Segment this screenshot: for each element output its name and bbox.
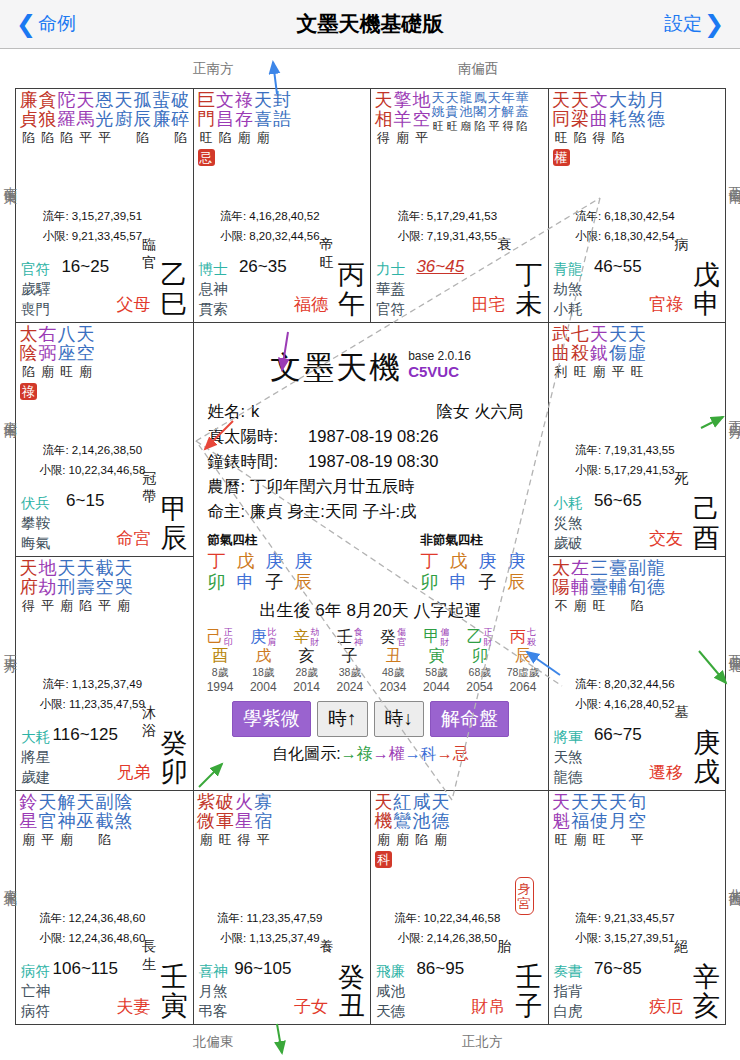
- star-天哭: 天哭廟: [114, 559, 133, 613]
- brightness: 旺: [555, 130, 568, 145]
- palace-career[interactable]: 天同旺權天梁陷文曲得大耗陷劫煞月德流年: 6,18,30,42,54小限: 6,…: [549, 89, 727, 323]
- star-row: 天同旺權天梁陷文曲得大耗陷劫煞月德: [552, 91, 666, 166]
- palace-parents[interactable]: 廉貞陷貪狼陷陀羅陷天馬平恩光平天廚孤辰陷蜚廉破碎陷流年: 3,15,27,39,…: [16, 89, 194, 323]
- birth-info: 姓名: k 陰女 火六局 真太陽時: 1987-08-19 08:26 鐘錶時間…: [208, 399, 540, 524]
- life-stage: 帝旺: [318, 235, 335, 271]
- palace-friends[interactable]: 武曲利七殺旺天鉞廟天傷平天虛旺流年: 7,19,31,43,55小限: 5,17…: [549, 323, 727, 557]
- star-天馬: 天馬平: [76, 91, 95, 145]
- non-solar-term-pillars-columns: 丁卯戊申庚子庚辰: [421, 551, 526, 593]
- star-天貴: 天貴旺: [445, 91, 459, 133]
- luck-year: 2044: [423, 680, 450, 694]
- god-label: 力士: [376, 259, 405, 279]
- brightness: 得: [503, 120, 514, 133]
- star-七殺: 七殺旺: [571, 325, 590, 379]
- liunian-years: 流年: 6,18,30,42,54: [549, 209, 702, 224]
- palace-travel[interactable]: 太陽不左輔廟三臺旺臺輔副旬陷龍德流年: 8,20,32,44,56小限: 4,1…: [549, 557, 727, 791]
- liunian-years: 流年: 10,22,34,46,58: [371, 911, 524, 926]
- star-副截: 副截陷: [95, 793, 114, 847]
- liunian-years: 流年: 7,19,31,43,55: [549, 443, 702, 458]
- stem-branch: 庚戌: [692, 729, 721, 787]
- star-左輔: 左輔廟: [571, 559, 590, 613]
- star-劫煞: 劫煞: [628, 91, 647, 129]
- brightness: 陷: [612, 130, 625, 145]
- brightness: 陷: [631, 598, 644, 613]
- luck-age: 38歲: [339, 666, 361, 680]
- brightness: 陷: [517, 120, 528, 133]
- god-label: 伏兵: [21, 493, 50, 513]
- body-palace-badge: 身宮: [515, 877, 534, 915]
- luck-pillars-row: 己正印酉8歲1994庚比肩戌18歲2004辛劫財亥28歲2014壬食神子38歲2…: [200, 628, 544, 694]
- god-label: 官符: [376, 299, 405, 319]
- god-label: 咸池: [376, 981, 405, 1001]
- brightness: 廟: [117, 598, 130, 613]
- star-龍德: 龍德: [647, 559, 666, 597]
- action-buttons: 學紫微 時↑ 時↓ 解命盤: [194, 701, 548, 737]
- palace-name: 兄弟: [117, 761, 151, 784]
- god-label: 病符: [21, 961, 50, 981]
- star-咸池: 咸池陷: [412, 793, 431, 847]
- brightness: 平: [79, 130, 92, 145]
- brightness: 平: [612, 364, 625, 379]
- brightness: 陷: [79, 598, 92, 613]
- liunian-years: 流年: 12,24,36,48,60: [16, 911, 169, 926]
- brightness: 陷: [219, 130, 232, 145]
- palace-name: 田宅: [472, 293, 506, 316]
- god-label: 喪門: [21, 299, 50, 319]
- god-label: 貫索: [199, 299, 228, 319]
- palace-wealth[interactable]: 天機廟科紅鸞廟咸池陷天德廟流年: 10,22,34,46,58小限: 2,14,…: [371, 791, 549, 1025]
- star-三臺: 三臺旺: [590, 559, 609, 613]
- life-stage: 衰: [496, 235, 513, 253]
- clock-time-line: 鐘錶時間: 1987-08-19 08:30: [208, 449, 540, 474]
- star-陀羅: 陀羅陷: [57, 91, 76, 145]
- ten-god-label: 比肩: [267, 628, 276, 647]
- god-label: 喜神: [199, 961, 228, 981]
- legend-arrow: →: [437, 745, 453, 762]
- brightness: 廟: [461, 120, 472, 133]
- brightness: 廟: [60, 598, 73, 613]
- hour-up-button[interactable]: 時↑: [317, 701, 368, 737]
- god-label: 弔客: [199, 1001, 228, 1021]
- app-title-row: 文墨天機 base 2.0.16 C5VUC: [194, 347, 548, 389]
- palace-name: 子女: [294, 995, 328, 1018]
- palace-children[interactable]: 紫微廟破軍旺火星得寡宿平流年: 11,23,35,47,59小限: 1,13,2…: [194, 791, 372, 1025]
- life-stage: 病: [673, 235, 690, 253]
- center-info-panel: 文墨天機 base 2.0.16 C5VUC 姓名: k 陰女 火六局 真太陽時…: [194, 323, 549, 791]
- luck-pillar: 乙正財卯68歲2054: [459, 628, 500, 694]
- liunian-years: 流年: 3,15,27,39,51: [16, 209, 169, 224]
- back-chevron-icon: ❮: [16, 14, 36, 34]
- star-鳳閣: 鳳閣陷: [473, 91, 487, 133]
- luck-age: 78虛歲: [507, 666, 540, 680]
- brightness: 廟: [377, 832, 390, 847]
- compass-north-by-west: 北偏西: [726, 878, 740, 884]
- brightness: 得: [238, 832, 251, 847]
- compass-east-by-south: 東偏南: [1, 410, 19, 416]
- stem-branch: 戊申: [692, 261, 721, 319]
- liunian-years: 流年: 11,23,35,47,59: [194, 911, 347, 926]
- luck-age: 48歲: [382, 666, 404, 680]
- name-line: 姓名: k 陰女 火六局: [208, 399, 540, 424]
- star-截空: 截空平: [95, 559, 114, 613]
- star-紫微: 紫微廟: [197, 793, 216, 847]
- compass-west-by-south: 西偏南: [726, 176, 740, 182]
- life-stage: 死: [673, 469, 690, 487]
- palace-name: 遷移: [649, 761, 683, 784]
- star-天空: 天空廟: [76, 325, 95, 379]
- stem-branch: 癸卯: [160, 729, 189, 787]
- pillar: 戊申: [237, 551, 255, 593]
- palace-property[interactable]: 天相得擎羊廟地空平天姚旺天貴旺龍池廟鳳閣陷天才平年解得華蓋陷流年: 5,17,2…: [371, 89, 549, 323]
- luck-year: 2004: [250, 680, 277, 694]
- star-row: 巨門旺忌文昌陷祿存廟天喜廟封誥: [197, 91, 292, 166]
- star-地空: 地空平: [412, 91, 431, 145]
- star-太陽: 太陽不: [552, 559, 571, 613]
- ten-god-label: 正印: [224, 628, 233, 647]
- compass-south-by-east: 南偏東: [1, 176, 19, 182]
- true-solar-label: 真太陽時:: [208, 424, 304, 449]
- liunian-years: 流年: 5,17,29,41,53: [371, 209, 524, 224]
- brightness: 陷: [415, 832, 428, 847]
- star-天魁: 天魁旺: [552, 793, 571, 847]
- star-副旬: 副旬陷: [628, 559, 647, 613]
- star-天虛: 天虛旺: [628, 325, 647, 379]
- transform-badge: 忌: [198, 149, 215, 166]
- life-stage: 養: [318, 937, 335, 955]
- brightness: 旺: [447, 120, 458, 133]
- star-文昌: 文昌陷: [216, 91, 235, 145]
- legend-arrow: →: [341, 745, 357, 762]
- brightness: 廟: [238, 130, 251, 145]
- compass-east-by-north: 東偏北: [1, 878, 19, 884]
- interpret-chart-button[interactable]: 解命盤: [430, 701, 509, 737]
- star-八座: 八座旺: [57, 325, 76, 379]
- ten-god-label: 食神: [354, 628, 363, 647]
- luck-age: 18歲: [252, 666, 274, 680]
- star-鈴星: 鈴星廟: [19, 793, 38, 847]
- settings-chevron-icon: ❯: [704, 14, 724, 34]
- brightness: 不: [555, 598, 568, 613]
- star-地劫: 地劫平: [38, 559, 57, 613]
- brightness: 廟: [396, 130, 409, 145]
- pillar: 戊申: [450, 551, 468, 593]
- palace-fortune[interactable]: 巨門旺忌文昌陷祿存廟天喜廟封誥流年: 4,16,28,40,52小限: 8,20…: [194, 89, 372, 323]
- true-solar-value: 1987-08-19 08:26: [308, 427, 438, 445]
- star-大耗: 大耗陷: [609, 91, 628, 145]
- star-row: 廉貞陷貪狼陷陀羅陷天馬平恩光平天廚孤辰陷蜚廉破碎陷: [19, 91, 190, 145]
- ten-god-label: 偏財: [440, 628, 449, 647]
- luck-age: 68歲: [469, 666, 491, 680]
- brightness: 平: [41, 832, 54, 847]
- star-旬空: 旬空平: [628, 793, 647, 847]
- star-天機: 天機廟科: [374, 793, 393, 868]
- star-陰煞: 陰煞: [114, 793, 133, 831]
- life-stage: 冠帶: [141, 469, 158, 505]
- luck-pillar: 壬食神子38歲2024: [329, 628, 370, 694]
- year-gods: 伏兵攀鞍晦氣: [21, 493, 50, 553]
- year-gods: 力士華蓋官符: [376, 259, 405, 319]
- year-gods: 小耗災煞歲破: [554, 493, 583, 553]
- legend-arrow: →: [373, 745, 389, 762]
- ten-god-label: 劫財: [311, 628, 320, 647]
- luck-year: 2064: [510, 680, 537, 694]
- hour-down-button[interactable]: 時↓: [374, 701, 425, 737]
- star-天府: 天府得: [19, 559, 38, 613]
- brightness: 平: [98, 130, 111, 145]
- version-label: base 2.0.16: [408, 349, 471, 363]
- brightness: 平: [631, 832, 644, 847]
- legend-char: 祿: [357, 745, 373, 762]
- gender-bureau: 陰女 火六局: [436, 399, 539, 424]
- star-武曲: 武曲利: [552, 325, 571, 379]
- compass-due-south: 正南方: [193, 60, 234, 78]
- star-天月: 天月: [609, 793, 628, 831]
- brightness: 陷: [98, 832, 111, 847]
- palace-name: 交友: [649, 527, 683, 550]
- star-天相: 天相得: [374, 91, 393, 145]
- brightness: 廟: [41, 364, 54, 379]
- god-label: 小耗: [554, 493, 583, 513]
- star-臺輔: 臺輔: [609, 559, 628, 597]
- back-label: 命例: [38, 11, 76, 37]
- star-巨門: 巨門旺忌: [197, 91, 216, 166]
- legend-items: →祿→權→科→忌: [341, 744, 469, 765]
- solar-term-pillars-header: 節氣四柱: [208, 532, 313, 549]
- page-title: 文墨天機基礎版: [297, 10, 444, 38]
- masters-line: 命主: 廉貞 身主:天同 子斗:戌: [208, 499, 540, 524]
- year-gods: 青龍劫煞小耗: [554, 259, 583, 319]
- star-天姚: 天姚旺: [431, 91, 445, 133]
- stem-branch: 己酉: [692, 495, 721, 553]
- brightness: 廟: [200, 832, 213, 847]
- liunian-years: 流年: 2,14,26,38,50: [16, 443, 169, 458]
- luck-age: 8歲: [212, 666, 228, 680]
- star-row: 鈴星廟天官平解神廟天巫副截陷陰煞: [19, 793, 133, 847]
- god-label: 病符: [21, 1001, 50, 1021]
- brightness: 廟: [574, 598, 587, 613]
- stem-branch: 癸丑: [337, 963, 366, 1021]
- brightness: 廟: [574, 832, 587, 847]
- star-華蓋: 華蓋陷: [515, 91, 529, 133]
- star-row: 太陽不左輔廟三臺旺臺輔副旬陷龍德: [552, 559, 666, 613]
- ziwei-chart-grid: 廉貞陷貪狼陷陀羅陷天馬平恩光平天廚孤辰陷蜚廉破碎陷流年: 3,15,27,39,…: [15, 88, 726, 1025]
- luck-year: 1994: [207, 680, 234, 694]
- liunian-years: 流年: 8,20,32,44,56: [549, 677, 702, 692]
- god-label: 災煞: [554, 513, 583, 533]
- palace-name: 官祿: [649, 293, 683, 316]
- brightness: 平: [41, 598, 54, 613]
- luck-year: 2054: [466, 680, 493, 694]
- god-label: 月煞: [199, 981, 228, 1001]
- brightness: 旺: [631, 364, 644, 379]
- stem-branch: 丁未: [515, 261, 544, 319]
- legend-arrow: →: [405, 745, 421, 762]
- star-天鉞: 天鉞廟: [590, 325, 609, 379]
- self-transform-legend: 自化圖示: →祿→權→科→忌: [194, 744, 548, 765]
- year-gods: 官符歲驛喪門: [21, 259, 50, 319]
- palace-name: 父母: [117, 293, 151, 316]
- name-value: k: [251, 399, 259, 424]
- star-文曲: 文曲得: [590, 91, 609, 145]
- star-天梁: 天梁陷: [571, 91, 590, 145]
- nav-bar: ❮ 命例 文墨天機基礎版 設定 ❯: [0, 0, 740, 49]
- god-label: 歲驛: [21, 279, 50, 299]
- learn-ziwei-button[interactable]: 學紫微: [232, 701, 311, 737]
- year-gods: 病符亡神病符: [21, 961, 50, 1021]
- brightness: 陷: [22, 364, 35, 379]
- star-row: 武曲利七殺旺天鉞廟天傷平天虛旺: [552, 325, 647, 379]
- god-label: 飛廉: [376, 961, 405, 981]
- life-stage: 長生: [141, 937, 158, 973]
- pillar: 庚辰: [295, 551, 313, 593]
- life-stage: 臨官: [141, 235, 158, 271]
- palace-name: 財帛: [472, 995, 506, 1018]
- god-label: 指背: [554, 981, 583, 1001]
- brightness: 平: [415, 130, 428, 145]
- ten-god-label: 七殺: [527, 628, 536, 647]
- compass-due-north: 正北方: [462, 1033, 503, 1051]
- star-天刑: 天刑廟: [57, 559, 76, 613]
- brightness: 得: [377, 130, 390, 145]
- luck-pillar: 庚比肩戌18歲2004: [243, 628, 284, 694]
- brightness: 平: [98, 598, 111, 613]
- pillar: 庚子: [266, 551, 284, 593]
- stem-branch: 壬寅: [160, 963, 189, 1021]
- brightness: 旺: [200, 130, 213, 145]
- star-row: 天魁旺天福廟天使旺天月旬空平: [552, 793, 647, 847]
- god-label: 亡神: [21, 981, 50, 1001]
- brightness: 旺: [593, 832, 606, 847]
- year-gods: 飛廉咸池天德: [376, 961, 405, 1021]
- palace-health[interactable]: 天魁旺天福廟天使旺天月旬空平流年: 9,21,33,45,57小限: 3,15,…: [549, 791, 727, 1025]
- brightness: 廟: [257, 130, 270, 145]
- ten-god-label: 傷官: [397, 628, 406, 647]
- lunar-date-line: 農曆: 丁卯年閏六月廿五辰時: [208, 474, 540, 499]
- brightness: 陷: [574, 130, 587, 145]
- star-天壽: 天壽陷: [76, 559, 95, 613]
- brightness: 陷: [174, 130, 187, 145]
- pillar: 丁卯: [208, 551, 226, 593]
- clock-time-value: 1987-08-19 08:30: [308, 452, 438, 470]
- star-天使: 天使旺: [590, 793, 609, 847]
- star-天同: 天同旺權: [552, 91, 571, 166]
- star-月德: 月德: [647, 91, 666, 129]
- ten-god-label: 正財: [484, 628, 493, 647]
- brightness: 廟: [593, 364, 606, 379]
- brightness: 平: [489, 120, 500, 133]
- luck-pillar: 己正印酉8歲1994: [200, 628, 241, 694]
- stem-branch: 乙巳: [160, 261, 189, 319]
- star-row: 紫微廟破軍旺火星得寡宿平: [197, 793, 273, 847]
- star-封誥: 封誥: [273, 91, 292, 129]
- name-label: 姓名:: [208, 399, 246, 424]
- legend-char: 科: [421, 745, 437, 762]
- star-天德: 天德廟: [431, 793, 450, 847]
- star-row: 太陰陷祿右弼廟八座旺天空廟: [19, 325, 95, 400]
- star-破軍: 破軍旺: [216, 793, 235, 847]
- luck-start-line: 出生後 6年 8月20天 八字起運: [194, 599, 548, 622]
- chart-title: 文墨天機: [270, 347, 402, 389]
- god-label: 大耗: [21, 727, 50, 747]
- stem-branch: 甲辰: [160, 495, 189, 553]
- star-天官: 天官平: [38, 793, 57, 847]
- life-stage: 絕: [673, 937, 690, 955]
- transform-badge: 科: [375, 851, 392, 868]
- star-天廚: 天廚: [114, 91, 133, 129]
- life-stage: 墓: [673, 703, 690, 721]
- palace-spouse[interactable]: 鈴星廟天官平解神廟天巫副截陷陰煞流年: 12,24,36,48,60小限: 12…: [16, 791, 194, 1025]
- palace-life[interactable]: 太陰陷祿右弼廟八座旺天空廟流年: 2,14,26,38,50小限: 10,22,…: [16, 323, 194, 557]
- star-火星: 火星得: [235, 793, 254, 847]
- luck-pillar: 癸傷官丑48歲2034: [373, 628, 414, 694]
- luck-year: 2014: [293, 680, 320, 694]
- build-code: C5VUC: [408, 363, 471, 380]
- brightness: 陷: [22, 130, 35, 145]
- brightness: 廟: [434, 832, 447, 847]
- non-solar-term-pillars: 非節氣四柱 丁卯戊申庚子庚辰: [421, 532, 526, 593]
- pillar: 丁卯: [421, 551, 439, 593]
- star-紅鸞: 紅鸞廟: [393, 793, 412, 847]
- brightness: 廟: [60, 832, 73, 847]
- god-label: 歲建: [21, 767, 50, 787]
- god-label: 將軍: [554, 727, 583, 747]
- liunian-years: 流年: 4,16,28,40,52: [194, 209, 347, 224]
- year-gods: 喜神月煞弔客: [199, 961, 228, 1021]
- god-label: 奏書: [554, 961, 583, 981]
- non-solar-term-pillars-header: 非節氣四柱: [421, 532, 526, 549]
- brightness: 陷: [136, 130, 149, 145]
- star-龍池: 龍池廟: [459, 91, 473, 133]
- star-天福: 天福廟: [571, 793, 590, 847]
- star-寡宿: 寡宿平: [254, 793, 273, 847]
- star-解神: 解神廟: [57, 793, 76, 847]
- god-label: 小耗: [554, 299, 583, 319]
- palace-name: 福德: [294, 293, 328, 316]
- star-擎羊: 擎羊廟: [393, 91, 412, 145]
- version-block: base 2.0.16 C5VUC: [408, 349, 471, 380]
- god-label: 歲破: [554, 533, 583, 553]
- god-label: 龍德: [554, 767, 583, 787]
- legend-label: 自化圖示:: [272, 744, 340, 765]
- back-button[interactable]: ❮ 命例: [10, 10, 82, 38]
- brightness: 旺: [593, 598, 606, 613]
- settings-button[interactable]: 設定 ❯: [658, 10, 730, 38]
- compass-due-east: 正東方: [1, 644, 19, 650]
- star-破碎: 破碎陷: [171, 91, 190, 145]
- year-gods: 博士息神貫索: [199, 259, 228, 319]
- transform-badge: 祿: [20, 383, 37, 400]
- star-天喜: 天喜廟: [254, 91, 273, 145]
- compass-south-by-west: 南偏西: [458, 60, 499, 78]
- palace-name: 疾厄: [649, 995, 683, 1018]
- life-stage: 沐浴: [141, 703, 158, 739]
- star-row: 天相得擎羊廟地空平天姚旺天貴旺龍池廟鳳閣陷天才平年解得華蓋陷: [374, 91, 529, 145]
- palace-name: 命宮: [117, 527, 151, 550]
- brightness: 陷: [60, 130, 73, 145]
- luck-age: 28歲: [295, 666, 317, 680]
- transform-badge: 權: [553, 149, 570, 166]
- star-右弼: 右弼廟: [38, 325, 57, 379]
- star-太陰: 太陰陷祿: [19, 325, 38, 400]
- year-gods: 大耗將星歲建: [21, 727, 50, 787]
- god-label: 白虎: [554, 1001, 583, 1021]
- settings-label: 設定: [664, 11, 702, 37]
- brightness: 陷: [41, 130, 54, 145]
- brightness: 陷: [475, 120, 486, 133]
- star-孤辰: 孤辰陷: [133, 91, 152, 145]
- palace-siblings[interactable]: 天府得地劫平天刑廟天壽陷截空平天哭廟流年: 1,13,25,37,49小限: 1…: [16, 557, 194, 791]
- god-label: 劫煞: [554, 279, 583, 299]
